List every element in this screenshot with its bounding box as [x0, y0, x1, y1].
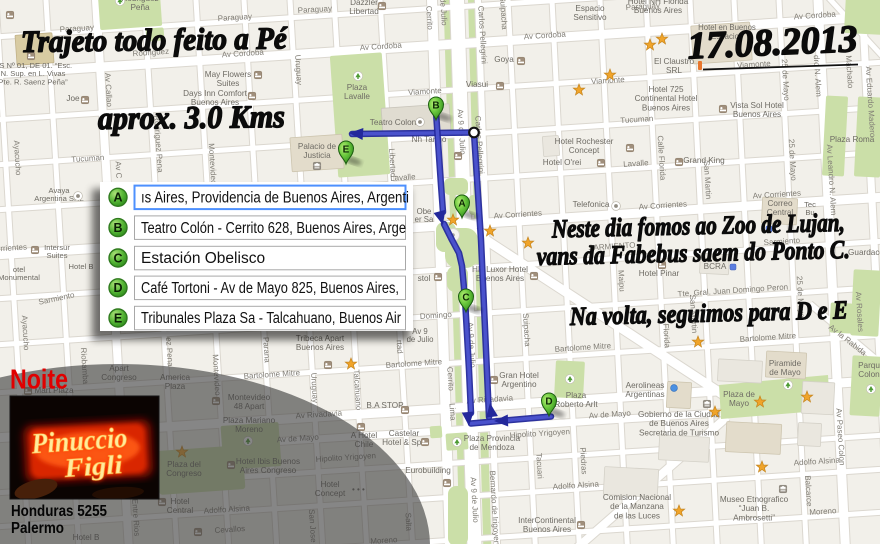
svg-text:Uruguay: Uruguay	[309, 372, 320, 403]
svg-text:Piedras: Piedras	[578, 447, 589, 475]
svg-text:Libertad: Libertad	[387, 148, 398, 177]
svg-text:Gran HotelArgentino: Gran HotelArgentino	[499, 371, 539, 389]
svg-text:A: A	[113, 191, 122, 205]
svg-text:stol: stol	[418, 274, 431, 283]
svg-text:Av C: Av C	[113, 161, 123, 179]
svg-text:PlazaLavalle: PlazaLavalle	[344, 83, 370, 101]
svg-text:Uruguay: Uruguay	[293, 54, 304, 85]
svg-text:Plaza Roma: Plaza Roma	[830, 135, 875, 144]
svg-text:AerolineasArgentinas: AerolineasArgentinas	[625, 381, 664, 399]
svg-text:Café Tortoni - Av de Mayo 825,: Café Tortoni - Av de Mayo 825, Buenos Ai…	[141, 280, 399, 297]
svg-text:Trajeto todo feito a Pé: Trajeto todo feito a Pé	[21, 20, 289, 59]
svg-text:Cerrito: Cerrito	[445, 367, 455, 392]
svg-text:de Julio: de Julio	[438, 0, 449, 26]
svg-text:C: C	[462, 292, 469, 303]
svg-text:DazzlerLibertad: DazzlerLibertad	[349, 0, 379, 16]
svg-text:NS Nº 01, DE 01. “Esc.N. Sup.: NS Nº 01, DE 01. “Esc.N. Sup. en L. Viva…	[0, 61, 72, 86]
svg-text:B: B	[113, 221, 122, 235]
svg-text:E: E	[114, 311, 122, 325]
svg-text:InterContinentalBuenos Aires: InterContinentalBuenos Aires	[518, 516, 576, 534]
svg-text:D: D	[545, 396, 552, 407]
svg-text:Plaza Provinciade Mendoza: Plaza Provinciade Mendoza	[464, 434, 521, 452]
svg-text:Estación Obelisco: Estación Obelisco	[141, 250, 265, 267]
svg-text:Guardaco: Guardaco	[848, 248, 880, 257]
svg-text:Teatro Colón - Cerrito 628, Bu: Teatro Colón - Cerrito 628, Buenos Aires…	[141, 220, 406, 237]
svg-text:Eurobuilding: Eurobuilding	[405, 466, 451, 475]
svg-text:Cerrito: Cerrito	[424, 6, 434, 31]
svg-text:Lavalle: Lavalle	[623, 158, 649, 169]
svg-text:Piramidede Mayo: Piramidede Mayo	[769, 359, 802, 377]
svg-text:Hotel Pinar: Hotel Pinar	[639, 269, 680, 278]
svg-text:Tacuari: Tacuari	[534, 453, 545, 480]
svg-text:Hotel O'rei: Hotel O'rei	[543, 158, 582, 167]
svg-text:IntersurSuites: IntersurSuites	[44, 243, 70, 260]
svg-text:C: C	[113, 251, 122, 265]
svg-text:D: D	[113, 281, 122, 295]
svg-text:E: E	[343, 144, 350, 155]
svg-text:aprox. 3.0 Kms: aprox. 3.0 Kms	[98, 98, 285, 136]
svg-text:rtad: rtad	[395, 340, 405, 354]
svg-text:ıs Aires, Providencia de Bueno: ıs Aires, Providencia de Buenos Aires, A…	[141, 190, 409, 207]
svg-text:Tribunales Plaza Sa - Talcahua: Tribunales Plaza Sa - Talcahuano, Buenos…	[141, 310, 401, 327]
svg-text:Parana: Parana	[261, 337, 272, 364]
svg-text:A: A	[458, 198, 465, 209]
svg-text:17.08.2013: 17.08.2013	[687, 18, 859, 67]
svg-text:EspacioSensitivo: EspacioSensitivo	[573, 4, 607, 22]
svg-text:Palermo: Palermo	[11, 520, 64, 537]
svg-text:Teatro Colon: Teatro Colon	[370, 118, 417, 127]
svg-text:Moreno: Moreno	[809, 506, 837, 517]
svg-text:Gobierno de la Ciudadde Buenos: Gobierno de la Ciudadde Buenos AiresSecr…	[638, 410, 720, 437]
svg-text:Vista Sol HotelBuenos Aires: Vista Sol HotelBuenos Aires	[730, 101, 784, 119]
svg-text:B.A STOP: B.A STOP	[366, 401, 404, 410]
svg-text:Obeer Sa: Obeer Sa	[415, 207, 434, 224]
svg-text:Joe: Joe	[66, 94, 80, 103]
svg-text:Hotel B: Hotel B	[69, 262, 94, 271]
svg-text:Goya: Goya	[494, 55, 514, 64]
svg-text:Honduras 5255: Honduras 5255	[11, 503, 107, 520]
svg-text:Lima: Lima	[447, 403, 457, 421]
svg-text:Noite: Noite	[10, 364, 68, 395]
svg-text:ParquColon: ParquColon	[858, 361, 880, 379]
svg-text:Grand King: Grand King	[683, 156, 725, 165]
svg-text:ez Pena: ez Pena	[164, 337, 175, 367]
svg-text:Figli: Figli	[62, 450, 124, 483]
svg-text:Hotel NH FloridaBuenos Aires: Hotel NH FloridaBuenos Aires	[628, 0, 689, 15]
svg-text:Viasui: Viasui	[466, 80, 488, 89]
svg-text:Telefonica: Telefonica	[573, 200, 610, 209]
svg-text:B: B	[432, 100, 439, 111]
svg-text:Maipu: Maipu	[616, 270, 626, 292]
